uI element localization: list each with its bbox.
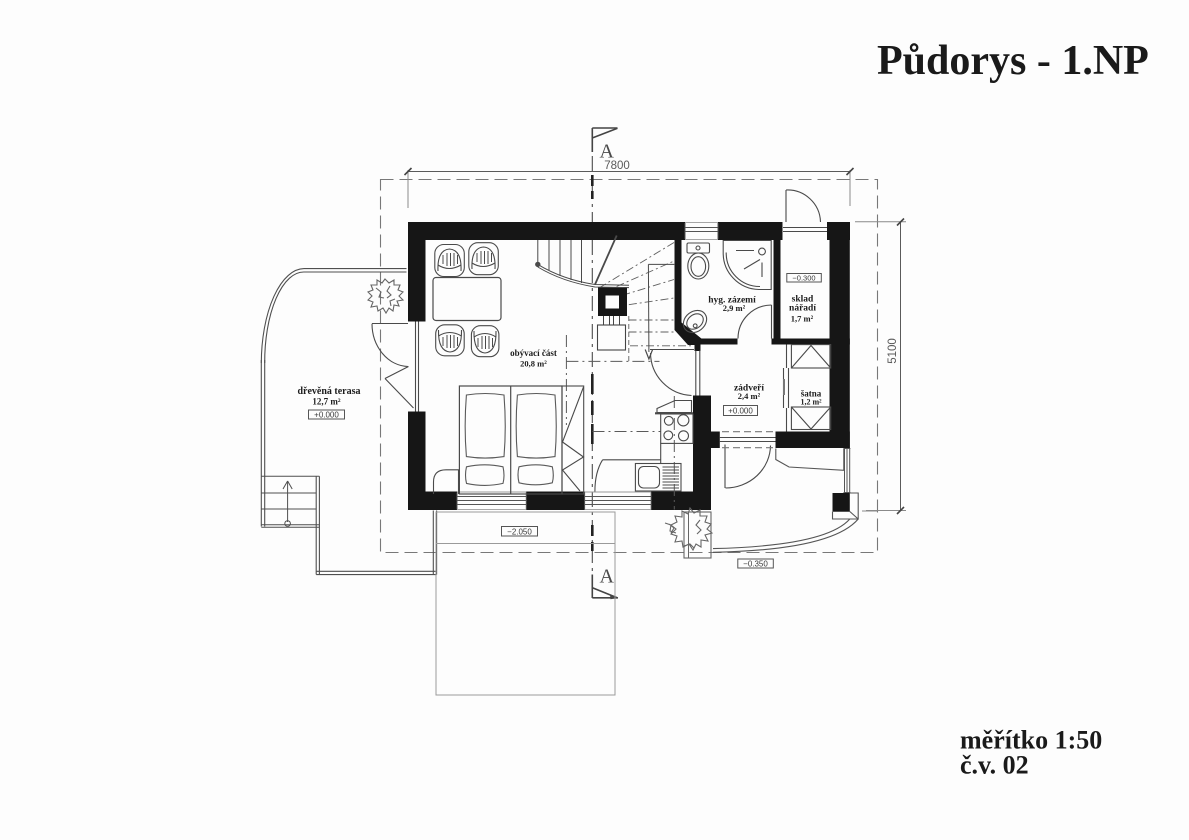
svg-text:1,7 m²: 1,7 m² [791,314,814,324]
svg-text:2,4 m²: 2,4 m² [738,391,761,401]
svg-text:5100: 5100 [887,338,899,364]
svg-text:Půdorys - 1.NP: Půdorys - 1.NP [877,38,1149,84]
svg-text:+0.000: +0.000 [314,410,339,419]
svg-text:−0.300: −0.300 [792,274,815,283]
svg-text:nářadí: nářadí [789,304,816,314]
svg-text:−2.050: −2.050 [507,527,532,536]
svg-text:2,9 m²: 2,9 m² [723,303,746,313]
svg-text:č.v. 02: č.v. 02 [960,751,1029,780]
svg-text:20,8 m²: 20,8 m² [520,359,547,369]
svg-text:obývací část: obývací část [510,348,557,358]
svg-text:1,2 m²: 1,2 m² [800,398,822,407]
svg-text:A: A [600,141,615,163]
svg-text:12,7 m²: 12,7 m² [312,397,340,407]
svg-text:−0.350: −0.350 [743,560,768,569]
svg-text:A: A [600,566,615,588]
svg-text:dřevěná terasa: dřevěná terasa [297,386,360,397]
svg-text:+0.000: +0.000 [728,407,753,416]
